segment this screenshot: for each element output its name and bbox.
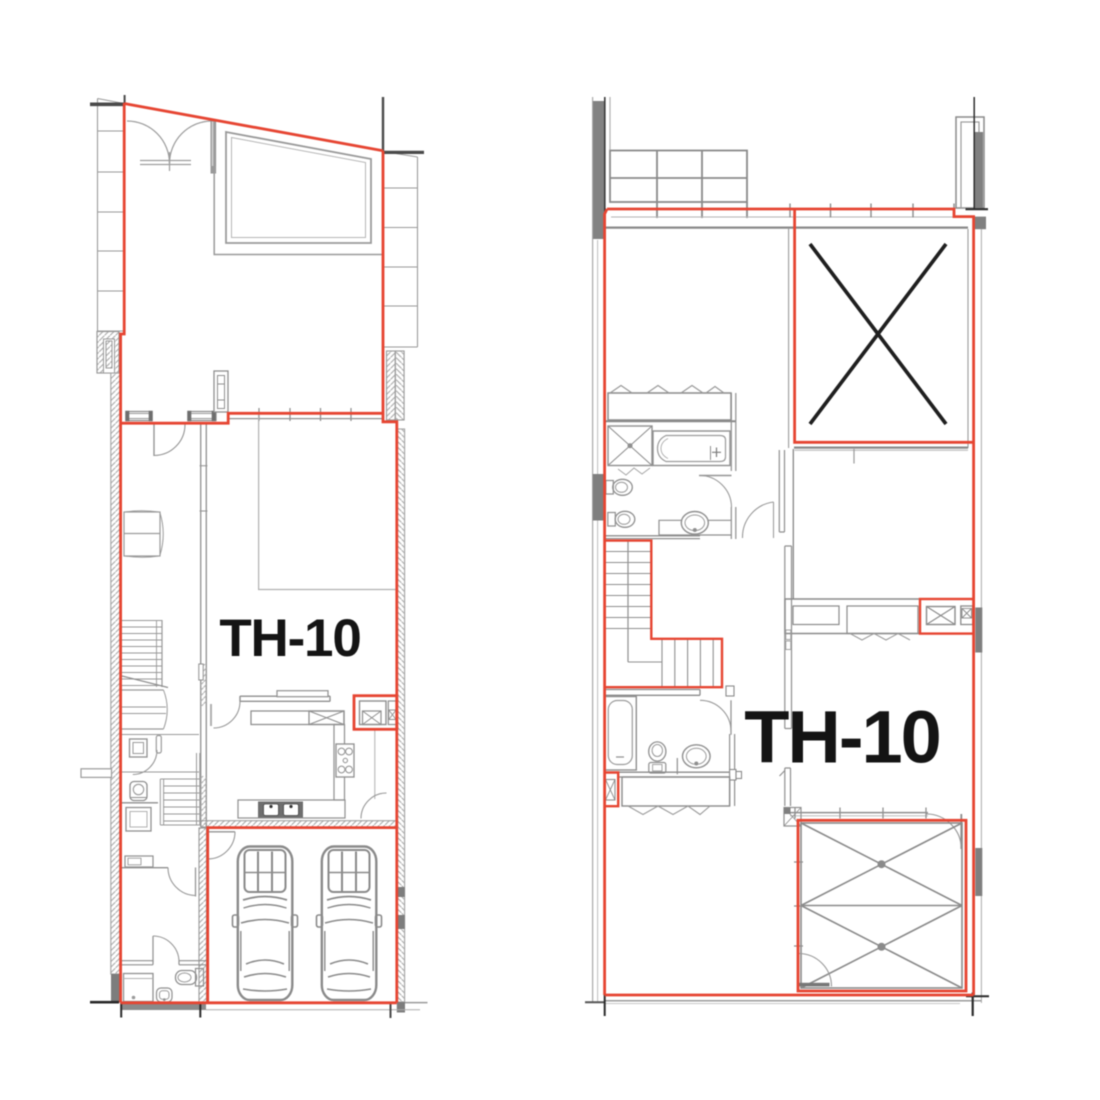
svg-text:TH-10: TH-10 <box>744 696 940 779</box>
svg-text:TH-10: TH-10 <box>219 609 360 668</box>
